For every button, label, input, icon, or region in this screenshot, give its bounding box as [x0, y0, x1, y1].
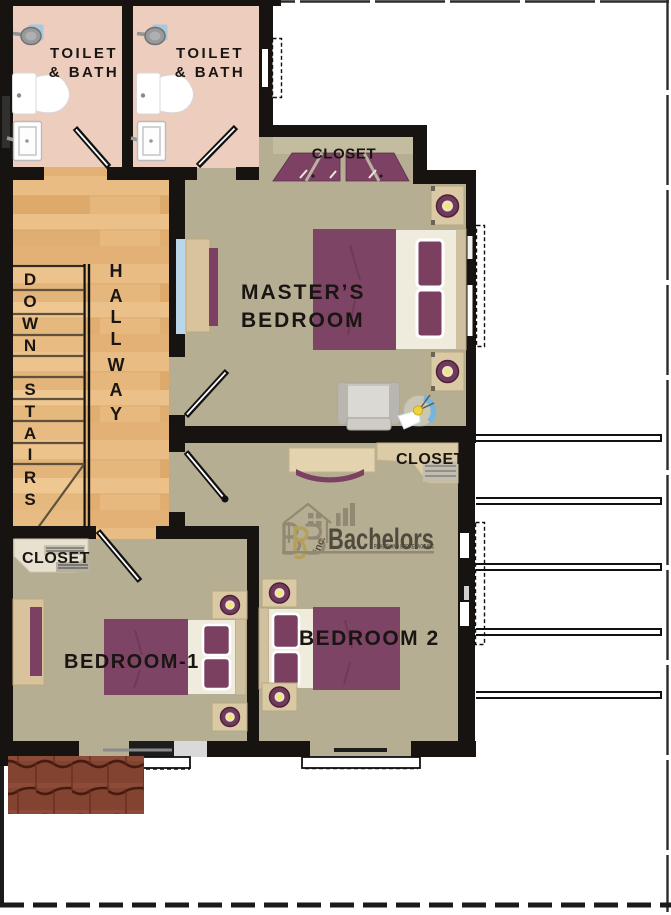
svg-text:T: T	[25, 402, 36, 421]
svg-text:TOILET: TOILET	[176, 45, 244, 62]
svg-text:& BATH: & BATH	[49, 64, 120, 81]
svg-text:CLOSET: CLOSET	[22, 550, 90, 567]
svg-text:BEDROOM: BEDROOM	[241, 309, 365, 332]
svg-text:BEDROOM 2: BEDROOM 2	[299, 627, 440, 650]
svg-text:L: L	[111, 329, 122, 349]
svg-text:S: S	[24, 380, 35, 399]
svg-text:D: D	[24, 270, 36, 289]
svg-text:I: I	[28, 445, 33, 464]
svg-text:BEDROOM-1: BEDROOM-1	[64, 651, 200, 673]
svg-text:W: W	[108, 355, 125, 375]
svg-text:S: S	[24, 490, 35, 509]
svg-text:L: L	[111, 307, 122, 327]
svg-text:MASTER’S: MASTER’S	[241, 281, 366, 304]
svg-text:CLOSET: CLOSET	[396, 451, 464, 468]
svg-text:R: R	[24, 468, 36, 487]
svg-text:A: A	[24, 424, 36, 443]
svg-text:H: H	[110, 261, 123, 281]
svg-text:O: O	[23, 292, 36, 311]
svg-text:N: N	[24, 336, 36, 355]
svg-text:CLOSET: CLOSET	[312, 146, 376, 163]
svg-text:TOILET: TOILET	[50, 45, 118, 62]
svg-text:W: W	[22, 314, 39, 333]
svg-text:A: A	[110, 380, 123, 400]
svg-text:REALTY AND BROKERAGE INC: REALTY AND BROKERAGE INC	[374, 545, 434, 551]
svg-text:Y: Y	[110, 404, 122, 424]
svg-text:A: A	[110, 286, 123, 306]
svg-text:& BATH: & BATH	[175, 64, 246, 81]
